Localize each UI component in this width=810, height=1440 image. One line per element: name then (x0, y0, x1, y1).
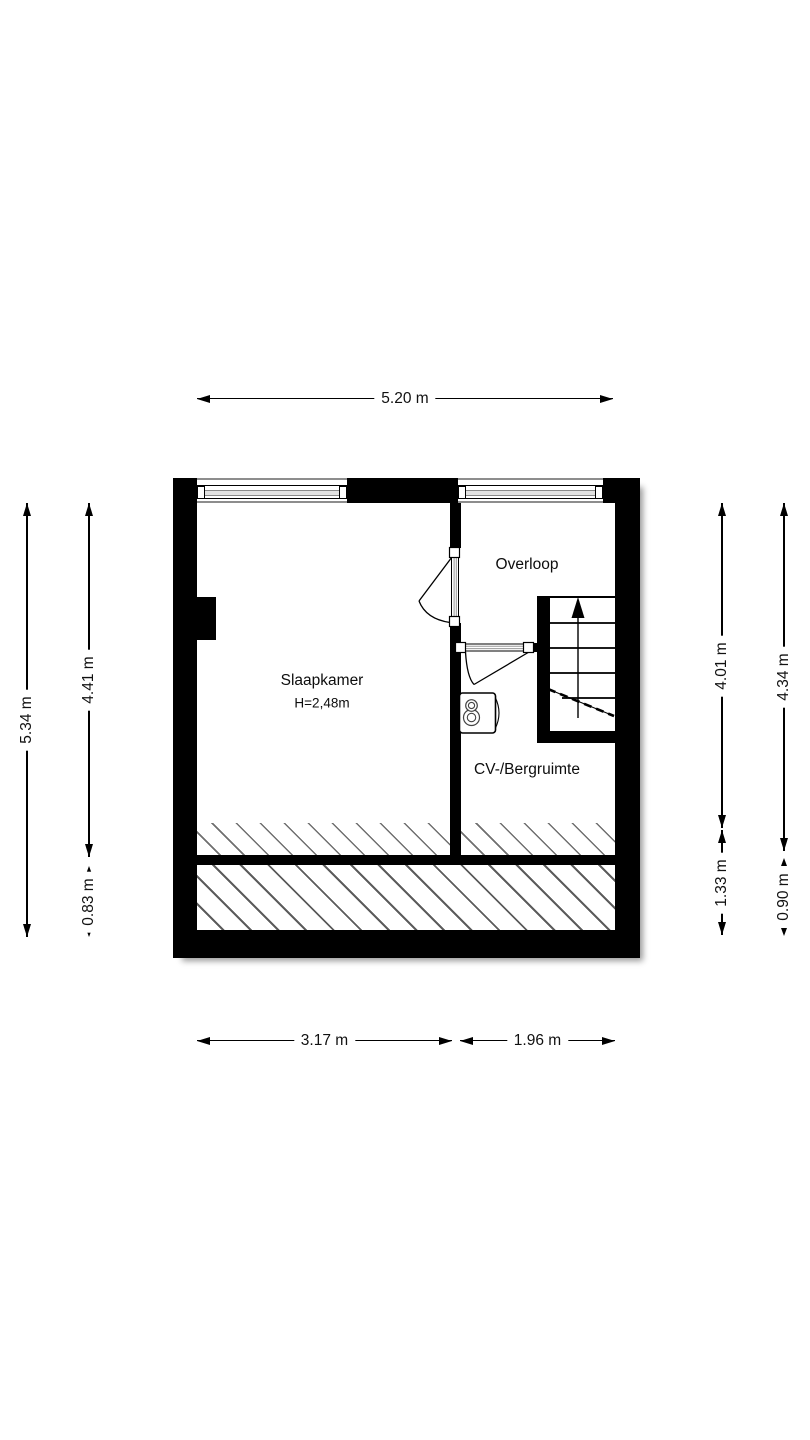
boiler-icon (460, 693, 500, 733)
dim-arrow-right (600, 395, 613, 403)
dim-bottom-right: 1.96 m (460, 1036, 615, 1045)
dim-arrow-up (718, 503, 726, 516)
ceiling-height-label: H=2,48m (294, 696, 349, 711)
dim-label: 3.17 m (294, 1032, 355, 1050)
dim-label: 4.34 m (775, 646, 793, 707)
plan-vector-details (0, 0, 810, 1440)
dim-arrow-down (23, 924, 31, 937)
dim-arrow-up (23, 503, 31, 516)
dim-arrow-down (718, 815, 726, 828)
dim-arrow-left (460, 1037, 473, 1045)
dim-label: 0.83 m (80, 871, 98, 932)
dim-arrow-right (439, 1037, 452, 1045)
dim-left-inner-lower: 0.83 m (85, 866, 94, 937)
dim-label: 1.96 m (507, 1032, 568, 1050)
door-icon-bedroom (419, 548, 460, 627)
room-label-slaapkamer: Slaapkamer (281, 672, 364, 690)
dim-arrow-down (718, 922, 726, 935)
dim-label: 1.33 m (713, 852, 731, 913)
dim-arrow-up (718, 830, 726, 843)
dim-arrow-right (602, 1037, 615, 1045)
dim-bottom-left: 3.17 m (197, 1036, 452, 1045)
dim-arrow-down-small (781, 928, 787, 936)
dim-arrow-up (85, 503, 93, 516)
floorplan-canvas: Slaapkamer H=2,48m Overloop CV-/Bergruim… (0, 0, 810, 1440)
dim-label: 4.01 m (713, 635, 731, 696)
dim-label: 5.34 m (18, 689, 36, 750)
dim-label: 0.90 m (775, 866, 793, 927)
dim-arrow-up (780, 503, 788, 516)
dim-right-outer-lower: 0.90 m (780, 858, 789, 936)
room-label-overloop: Overloop (496, 556, 559, 574)
dim-arrow-left (197, 1037, 210, 1045)
dim-arrow-up-small (781, 858, 787, 866)
dim-right-inner-upper: 4.01 m (718, 503, 727, 828)
dim-arrow-down (780, 838, 788, 851)
stairs-icon (548, 597, 614, 718)
room-label-cv-bergruimte: CV-/Bergruimte (474, 761, 580, 779)
dim-arrow-left (197, 395, 210, 403)
door-icon-storage (456, 643, 534, 685)
dim-top-width: 5.20 m (197, 394, 613, 403)
dim-left-inner-upper: 4.41 m (85, 503, 94, 857)
dim-label: 4.41 m (80, 649, 98, 710)
dim-right-inner-lower: 1.33 m (718, 830, 727, 935)
dim-arrow-down (85, 844, 93, 857)
dim-left-outer: 5.34 m (23, 503, 32, 937)
dim-label: 5.20 m (374, 390, 435, 408)
dim-right-outer-upper: 4.34 m (780, 503, 789, 851)
